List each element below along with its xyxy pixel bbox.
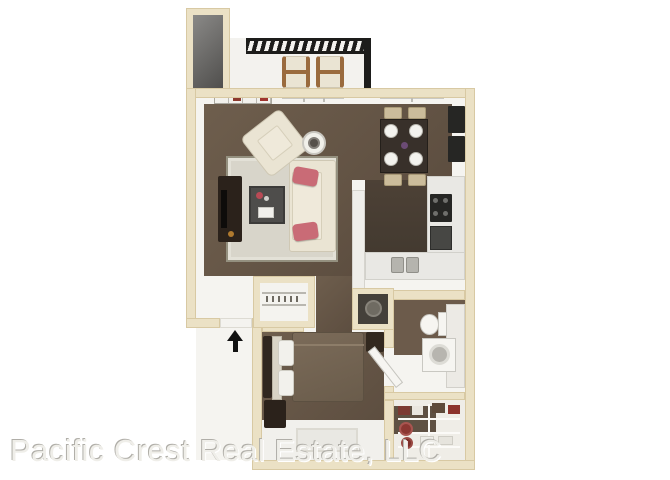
right-wall xyxy=(465,88,475,470)
dining-chair xyxy=(408,107,426,119)
table-lamp xyxy=(308,137,320,149)
tv-screen xyxy=(221,190,227,228)
kitchen-floor xyxy=(365,180,427,254)
bed-foldline xyxy=(292,344,364,346)
closet-clothes xyxy=(432,403,445,413)
patio-lounger-bar xyxy=(282,70,310,74)
coat-closet-shelf xyxy=(262,292,306,294)
kitchen-partition-wall xyxy=(352,190,365,290)
stove xyxy=(430,194,452,222)
toilet-bowl xyxy=(420,314,439,335)
coffee-table-decor xyxy=(256,192,263,199)
refrigerator xyxy=(448,106,465,133)
balcony-railing-icon xyxy=(246,38,370,54)
patio-lounger-bar xyxy=(316,70,344,74)
coffee-table xyxy=(249,186,285,224)
closet-clothes xyxy=(412,406,423,415)
coat-closet-interior xyxy=(260,283,308,321)
place-setting xyxy=(409,124,423,138)
place-setting xyxy=(384,124,398,138)
refrigerator-lower xyxy=(448,136,465,162)
washer-door xyxy=(429,344,450,365)
sink-basin xyxy=(406,257,419,273)
dresser xyxy=(264,400,286,428)
bedroom-shelf xyxy=(263,336,272,398)
tv-console-knob xyxy=(228,231,234,237)
coat-closet-shelf xyxy=(262,304,306,306)
bathroom-bottom-wall xyxy=(384,392,465,400)
sink-basin xyxy=(391,257,404,273)
oven xyxy=(430,226,452,250)
hall-carpet xyxy=(316,276,352,332)
sofa-pillow xyxy=(292,221,319,241)
entry-threshold xyxy=(220,318,252,328)
coffee-table-decor xyxy=(264,196,269,201)
left-wall xyxy=(186,88,196,328)
bed-pillow xyxy=(278,370,294,396)
toilet-tank xyxy=(438,312,447,336)
closet-clothes xyxy=(398,406,410,415)
dining-chair xyxy=(408,174,426,186)
bed-pillow xyxy=(278,340,294,366)
dining-chair xyxy=(384,107,402,119)
water-heater xyxy=(365,300,382,317)
coat-closet-hangers xyxy=(266,296,300,302)
place-setting xyxy=(409,152,423,166)
living-bottom-wall xyxy=(186,318,220,328)
floor-plan-image: Pacific Crest Real Estate, LLC xyxy=(0,0,670,480)
watermark-text: Pacific Crest Real Estate, LLC xyxy=(10,433,442,469)
table-centerpiece xyxy=(401,142,408,149)
entry-arrow-icon xyxy=(227,330,243,354)
storage-closet-interior xyxy=(193,15,223,89)
place-setting xyxy=(384,152,398,166)
dining-chair xyxy=(384,174,402,186)
bed xyxy=(292,332,364,402)
coffee-table-tray xyxy=(258,207,274,218)
closet-clothes xyxy=(448,405,460,414)
top-wall xyxy=(186,88,475,98)
balcony-railing-side xyxy=(364,38,371,88)
